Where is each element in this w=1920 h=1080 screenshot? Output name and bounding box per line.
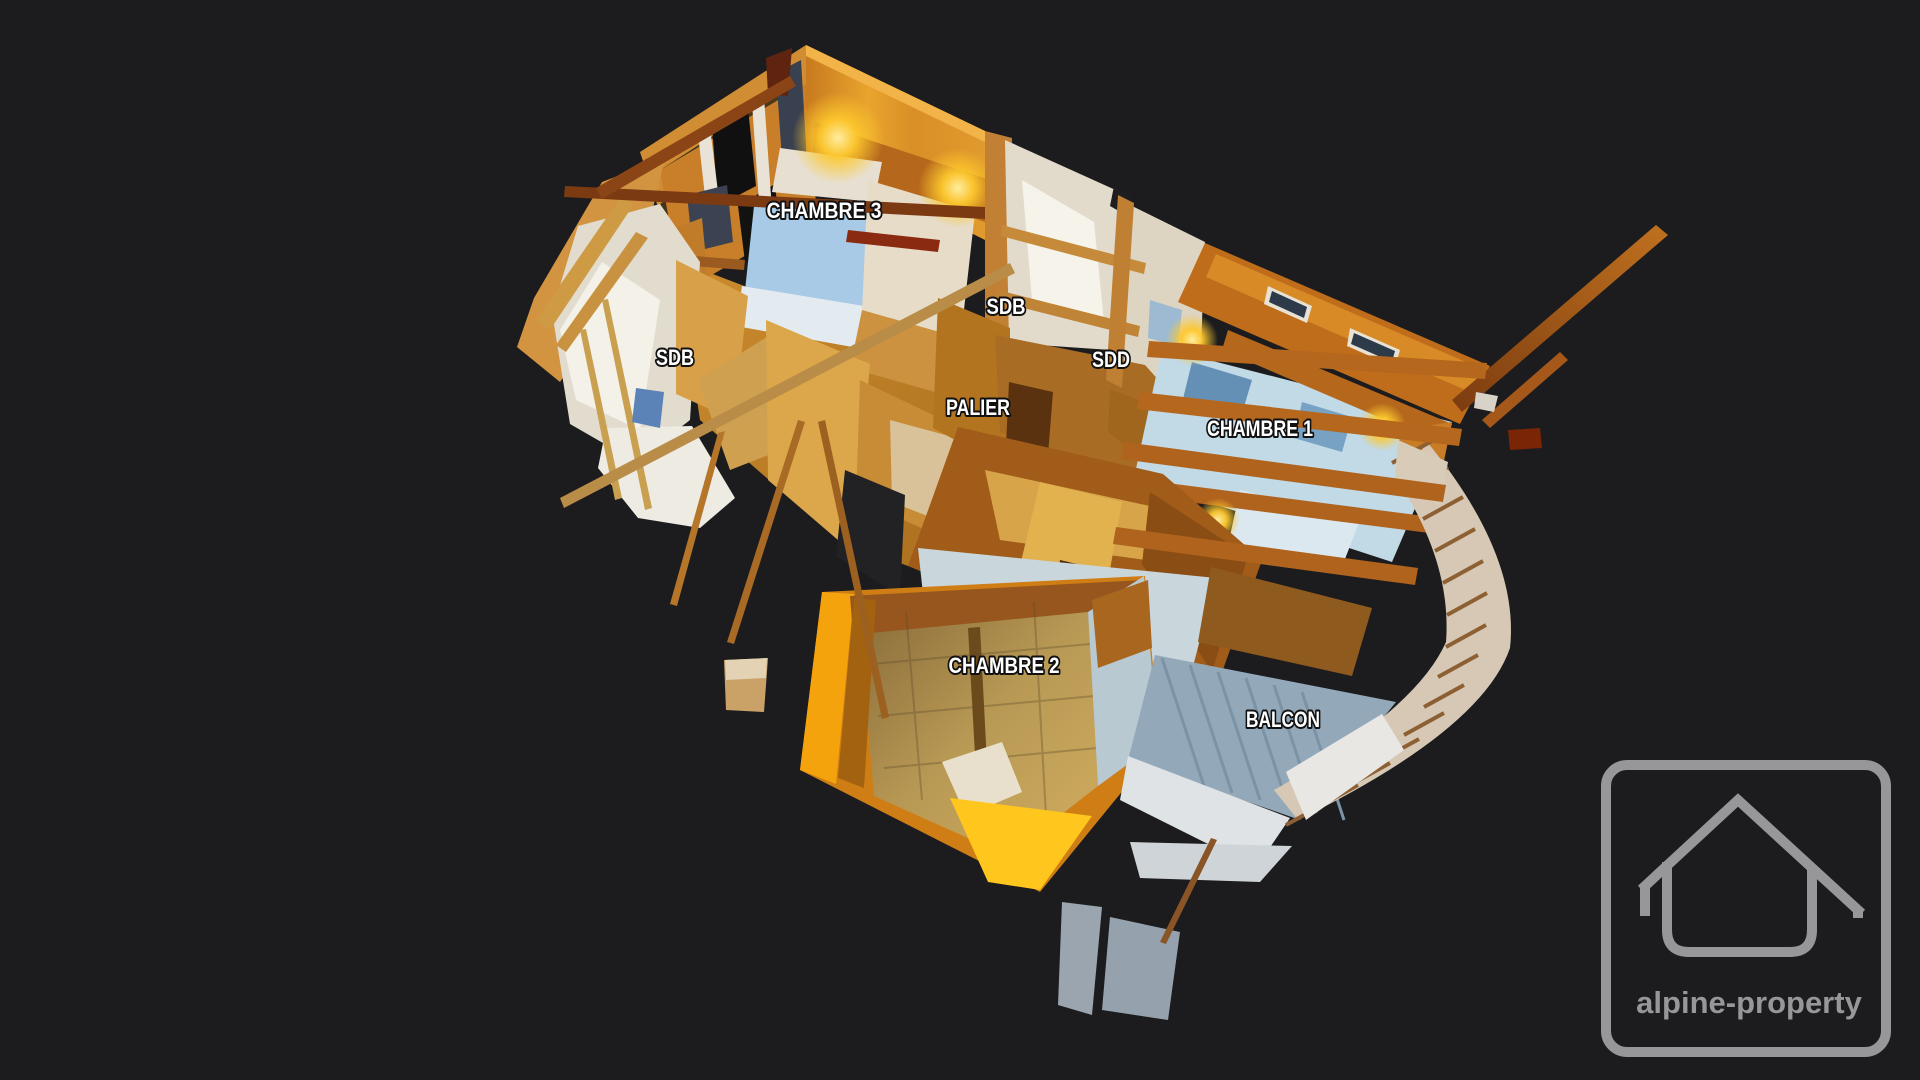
- svg-text:CHAMBRE 2: CHAMBRE 2: [949, 653, 1060, 678]
- svg-text:SDB: SDB: [987, 294, 1026, 319]
- svg-text:CHAMBRE 1: CHAMBRE 1: [1207, 416, 1313, 441]
- svg-text:BALCON: BALCON: [1246, 707, 1320, 732]
- svg-text:alpine-property: alpine-property: [1636, 985, 1862, 1020]
- svg-text:SDD: SDD: [1092, 347, 1130, 372]
- svg-text:SDB: SDB: [656, 345, 694, 370]
- svg-text:CHAMBRE 3: CHAMBRE 3: [767, 198, 882, 223]
- svg-text:PALIER: PALIER: [946, 395, 1010, 420]
